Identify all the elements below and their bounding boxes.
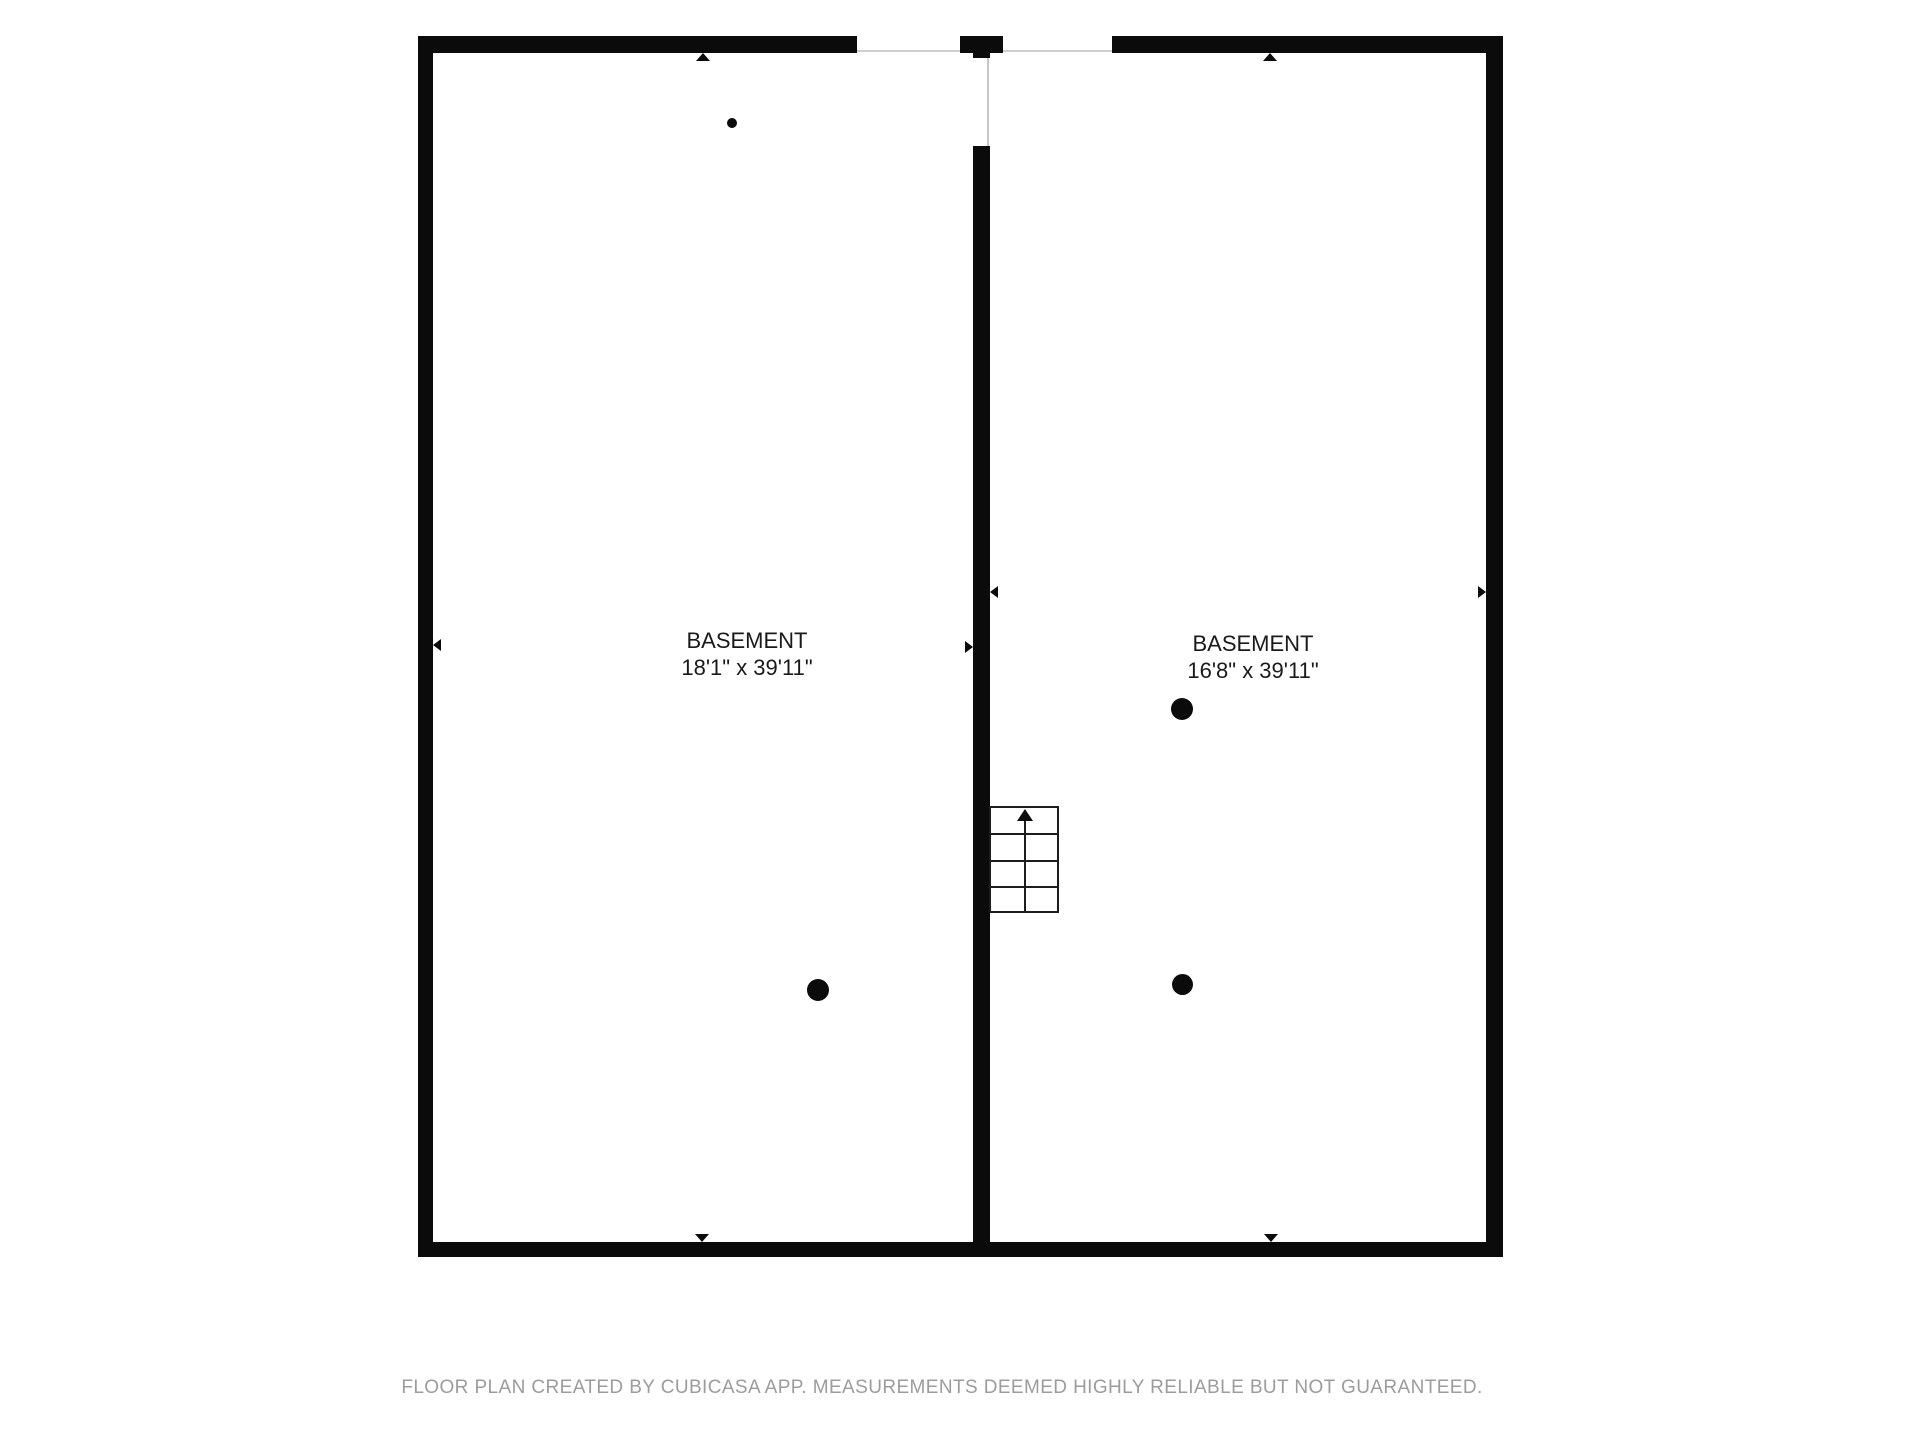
wall-top-divider-stub-notch (973, 53, 990, 58)
staircase (989, 806, 1059, 913)
dimension-arrow-up-icon (696, 53, 710, 61)
stair-direction-line (1024, 820, 1026, 911)
ceiling-point-dot (727, 118, 737, 128)
dimension-arrow-right-icon (965, 641, 973, 653)
wall-outer-right (1486, 36, 1503, 1257)
room-dimensions: 16'8" x 39'11" (1187, 657, 1318, 684)
divider-connector-line (987, 57, 989, 146)
wall-outer-top-left-segment (418, 36, 857, 53)
wall-outer-top-right-segment (1112, 36, 1503, 53)
dimension-arrow-left-icon (433, 639, 441, 651)
dimension-arrow-right-icon (1478, 586, 1486, 598)
room-label-basement-left: BASEMENT 18'1" x 39'11" (681, 627, 812, 681)
support-column-dot (1171, 698, 1193, 720)
support-column-dot (1172, 974, 1193, 995)
dimension-arrow-up-icon (1263, 53, 1277, 61)
room-dimensions: 18'1" x 39'11" (681, 654, 812, 681)
wall-top-divider-stub (960, 36, 1003, 53)
footer-disclaimer: FLOOR PLAN CREATED BY CUBICASA APP. MEAS… (401, 1377, 1482, 1399)
wall-center-divider (973, 146, 990, 1242)
floor-plan-canvas: BASEMENT 18'1" x 39'11" BASEMENT 16'8" x… (0, 0, 1920, 1440)
dimension-arrow-left-icon (990, 586, 998, 598)
room-name: BASEMENT (1187, 630, 1318, 657)
dimension-arrow-down-icon (1264, 1234, 1278, 1242)
room-name: BASEMENT (681, 627, 812, 654)
wall-outer-bottom (418, 1242, 1503, 1257)
wall-outer-left (418, 36, 433, 1257)
room-label-basement-right: BASEMENT 16'8" x 39'11" (1187, 630, 1318, 684)
dimension-arrow-down-icon (695, 1234, 709, 1242)
support-column-dot (807, 979, 829, 1001)
stair-up-arrow-icon (1017, 809, 1033, 821)
